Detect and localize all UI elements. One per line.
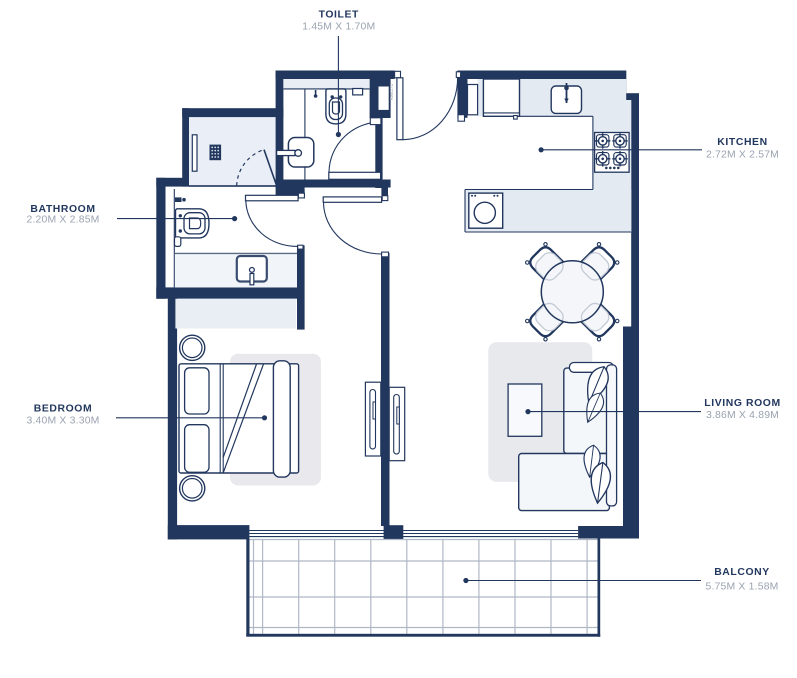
svg-text:2.72M X 2.57M: 2.72M X 2.57M (706, 150, 779, 161)
svg-text:BEDROOM: BEDROOM (34, 403, 92, 414)
svg-text:5.75M X 1.58M: 5.75M X 1.58M (705, 582, 778, 593)
svg-text:BALCONY: BALCONY (714, 567, 770, 578)
svg-text:BATHROOM: BATHROOM (30, 204, 95, 215)
svg-text:LIVING ROOM: LIVING ROOM (704, 398, 780, 409)
svg-text:2.20M X 2.85M: 2.20M X 2.85M (26, 215, 99, 226)
svg-text:TOILET: TOILET (319, 10, 359, 21)
svg-text:3.40M X 3.30M: 3.40M X 3.30M (26, 415, 99, 426)
svg-text:KITCHEN: KITCHEN (717, 137, 767, 148)
svg-text:RM/271: RM/271 (389, 83, 394, 100)
svg-text:1.45M X 1.70M: 1.45M X 1.70M (302, 22, 375, 33)
svg-text:3.86M X 4.89M: 3.86M X 4.89M (706, 410, 779, 421)
